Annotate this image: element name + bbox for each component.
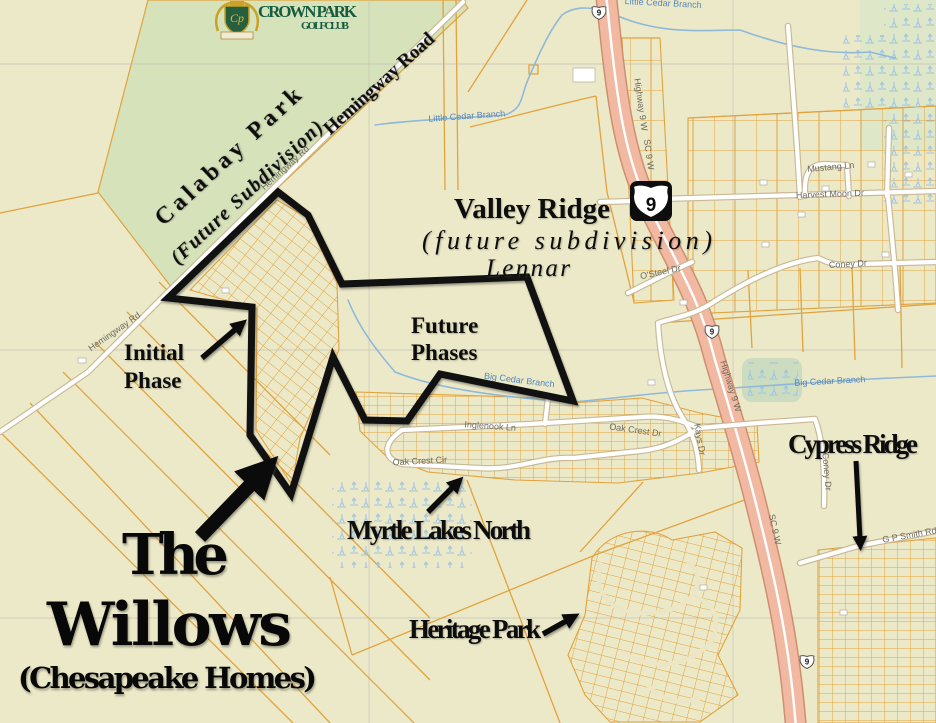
title-line1: The — [122, 522, 230, 588]
marsh-northeast-2 — [843, 35, 891, 111]
logo-club-name: CROWN PARK — [258, 2, 358, 21]
heritage-park-label: Heritage Park — [409, 614, 541, 644]
coney-dr-label-east: Coney Dr — [829, 258, 867, 270]
map-canvas: Little Cedar Branch Little Cedar Branch … — [0, 0, 936, 723]
cypress-ridge-lots — [818, 538, 936, 723]
title-line2: Willows — [46, 590, 293, 660]
subdivision-map: Little Cedar Branch Little Cedar Branch … — [0, 0, 936, 723]
logo-club-subtitle: GOLF CLUB — [301, 20, 350, 32]
route-9-shield-large-number: 9 — [646, 195, 657, 216]
cypress-ridge-label: Cypress Ridge — [788, 429, 918, 459]
valley-ridge-status-label: (future subdivision) — [422, 226, 712, 255]
valley-ridge-builder-label: Lennar — [485, 255, 570, 282]
valley-ridge-label: Valley Ridge — [454, 193, 610, 225]
route-9-shield-large: 9 — [630, 181, 672, 221]
route-9-shield-small-bottom-number: 9 — [805, 658, 810, 667]
logo-banner — [221, 32, 253, 39]
title-line3: (Chesapeake Homes) — [18, 661, 318, 695]
initial-phase-label-line1: Initial — [124, 340, 184, 365]
marsh-pond — [748, 362, 798, 400]
route-9-shield-small-mid-number: 9 — [710, 328, 715, 337]
route-9-shield-small-top-number: 9 — [597, 9, 602, 18]
initial-phase-label-line2: Phase — [124, 368, 182, 393]
myrtle-lakes-north-label: Myrtle Lakes North — [347, 515, 531, 545]
future-phases-label-line2: Phases — [411, 340, 478, 365]
logo-monogram: Cp — [230, 11, 244, 25]
future-phases-label-line1: Future — [411, 313, 478, 338]
marsh-northeast — [884, 4, 936, 210]
